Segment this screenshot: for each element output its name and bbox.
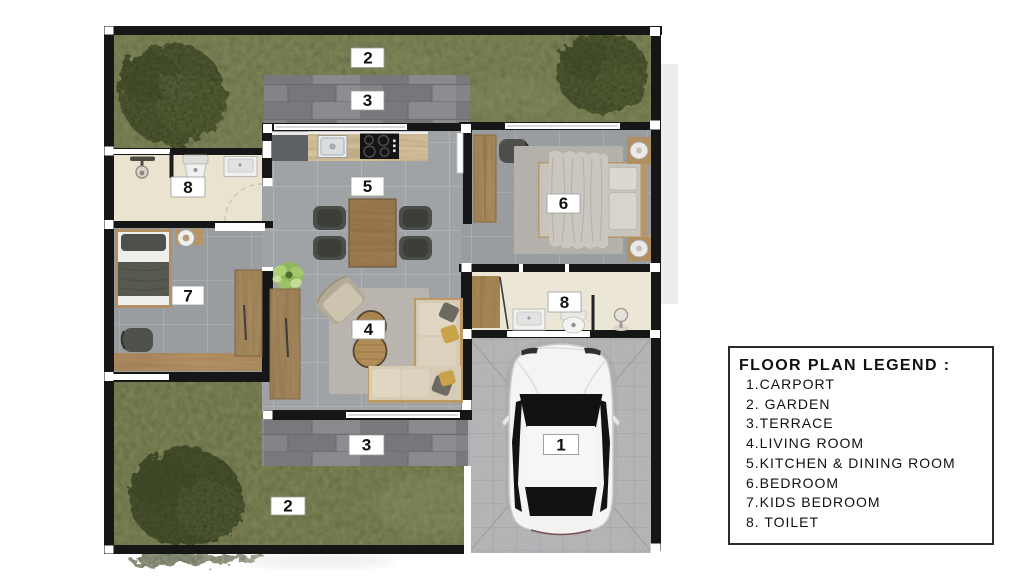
svg-text:5: 5 — [363, 177, 372, 196]
svg-text:4: 4 — [364, 320, 374, 339]
svg-text:8: 8 — [560, 293, 569, 312]
svg-text:2: 2 — [363, 49, 372, 68]
svg-text:7: 7 — [183, 287, 192, 306]
svg-text:3: 3 — [362, 436, 371, 455]
svg-text:2: 2 — [283, 497, 292, 516]
svg-text:6: 6 — [559, 194, 568, 213]
svg-text:3: 3 — [363, 91, 372, 110]
svg-text:8: 8 — [183, 178, 192, 197]
svg-text:1: 1 — [556, 436, 565, 455]
